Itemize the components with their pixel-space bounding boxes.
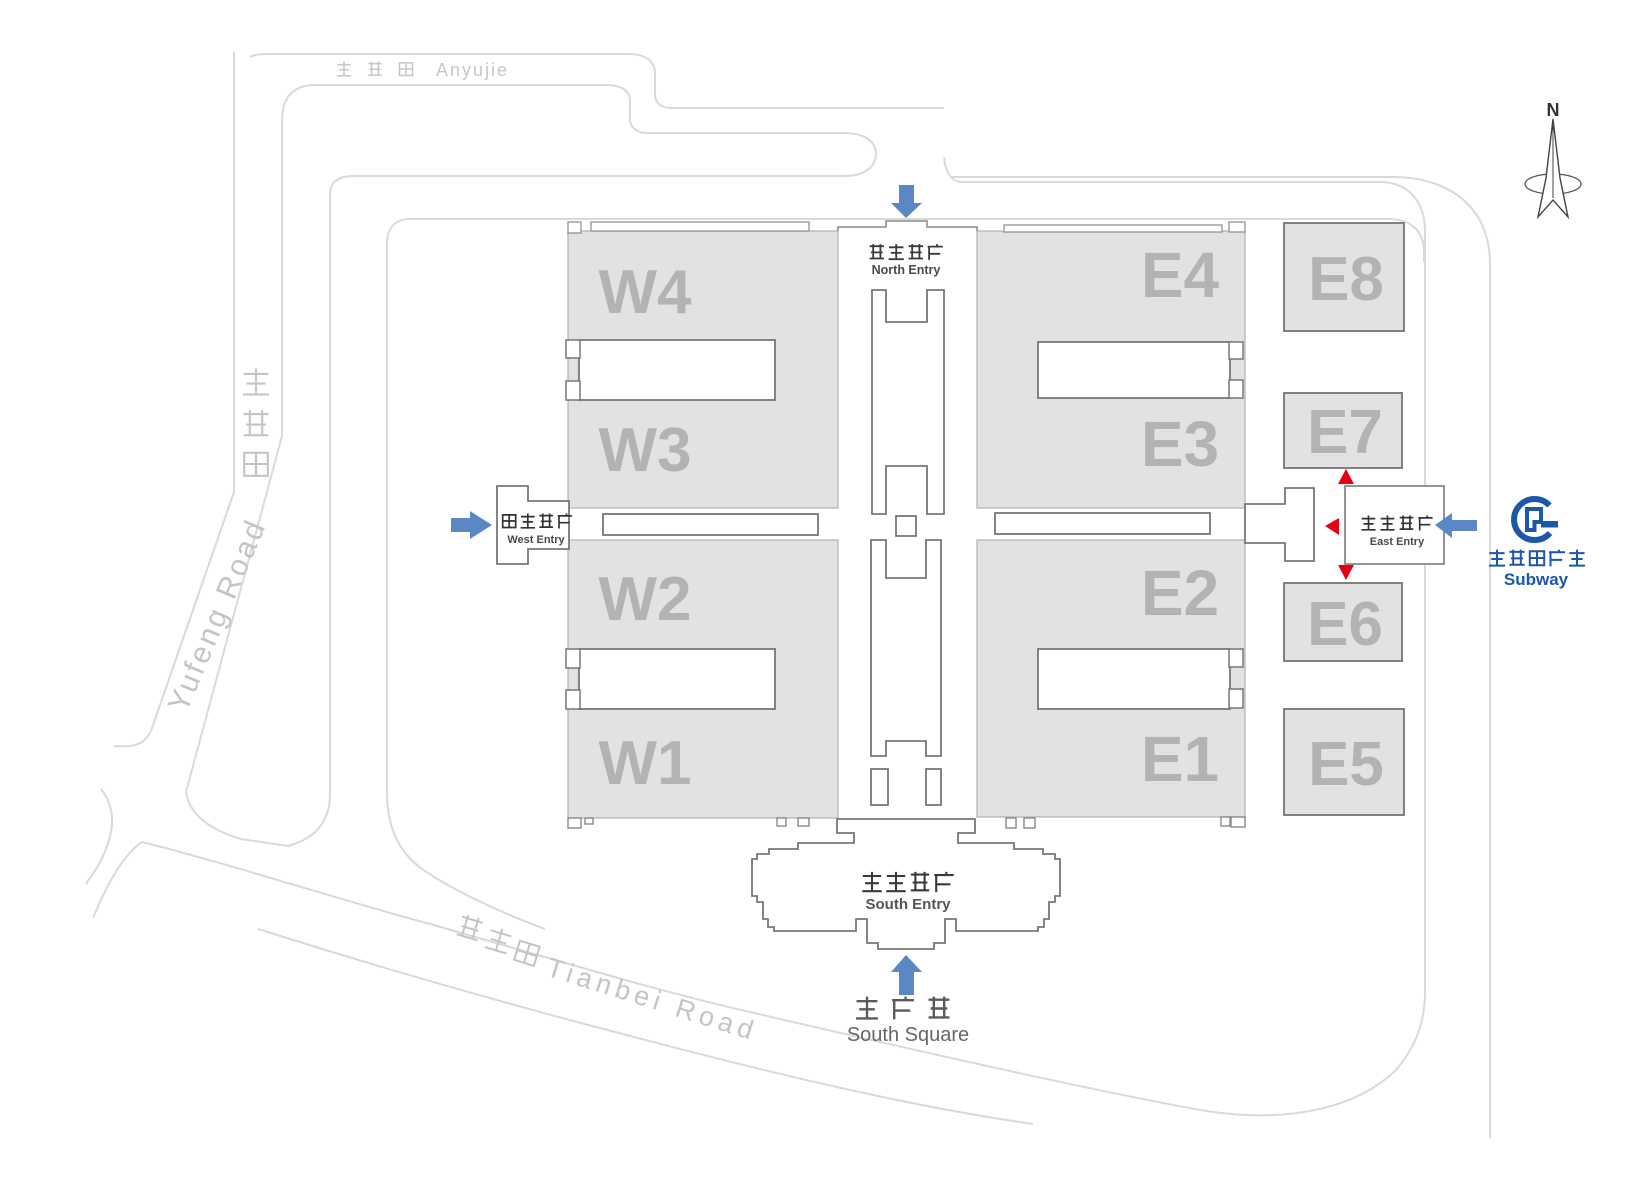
svg-text:E2: E2: [1141, 557, 1219, 629]
svg-text:West Entry: West Entry: [507, 534, 565, 546]
svg-text:W1: W1: [599, 729, 692, 798]
svg-text:East Entry: East Entry: [1370, 536, 1425, 548]
svg-text:Subway: Subway: [1504, 570, 1569, 589]
svg-text:W4: W4: [599, 258, 693, 327]
svg-text:W2: W2: [599, 565, 692, 634]
svg-text:Anyujie: Anyujie: [436, 60, 509, 80]
svg-text:E1: E1: [1141, 723, 1219, 795]
svg-text:E5: E5: [1308, 730, 1384, 799]
svg-text:E8: E8: [1308, 245, 1384, 314]
svg-text:W3: W3: [599, 416, 692, 485]
svg-text:E3: E3: [1141, 408, 1219, 480]
svg-text:E7: E7: [1307, 398, 1383, 467]
svg-text:South Entry: South Entry: [866, 896, 952, 913]
svg-text:N: N: [1547, 100, 1560, 120]
svg-text:E4: E4: [1141, 239, 1220, 311]
svg-text:E6: E6: [1307, 590, 1383, 659]
svg-text:Tianbei Road: Tianbei Road: [543, 952, 761, 1047]
svg-text:South Square: South Square: [847, 1024, 969, 1046]
svg-text:North Entry: North Entry: [872, 263, 941, 277]
svg-text:Yufeng Road: Yufeng Road: [162, 514, 273, 717]
